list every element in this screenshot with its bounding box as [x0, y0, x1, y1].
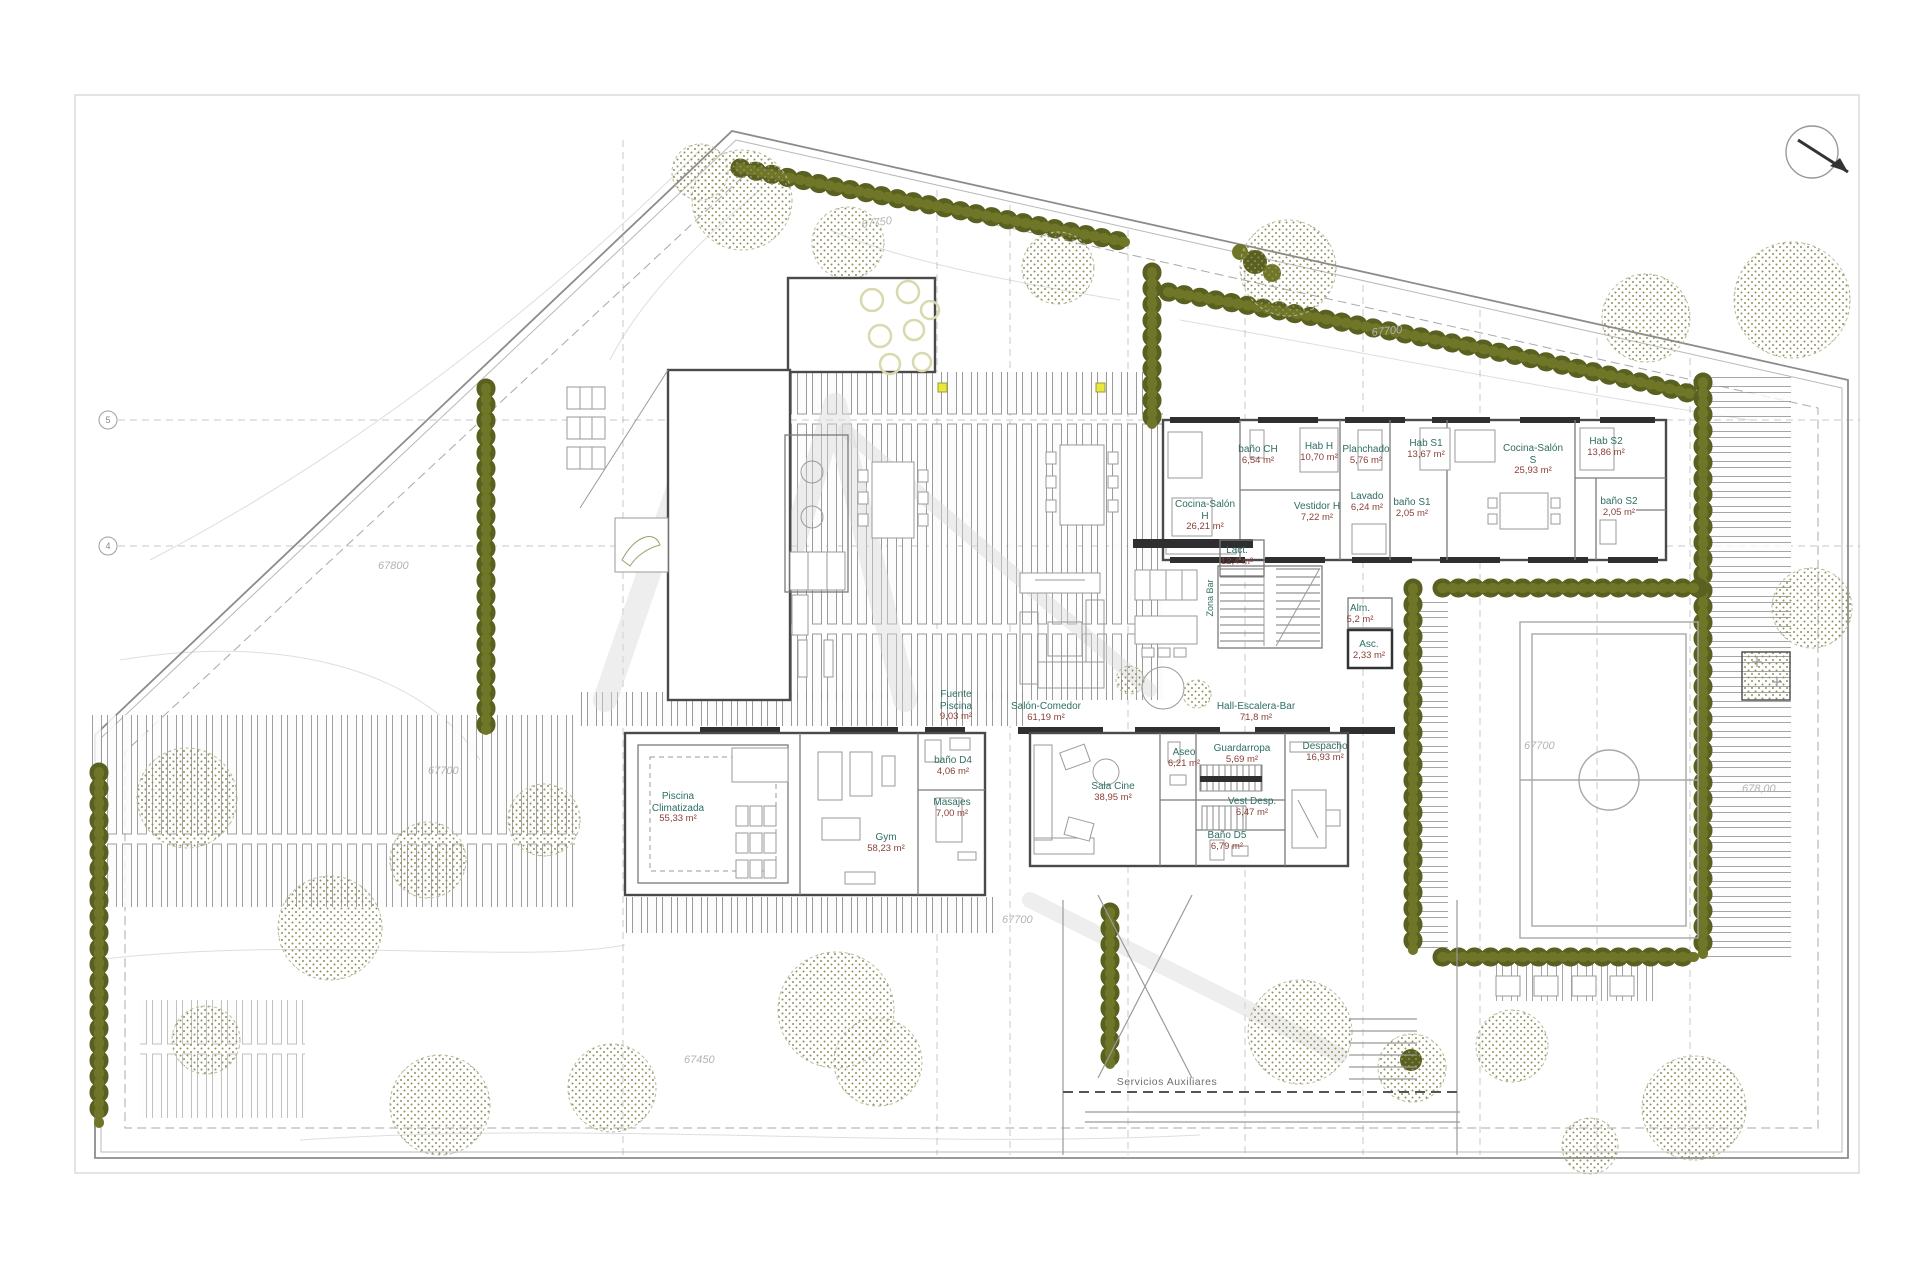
site-plan-drawing: 5 4 — [0, 0, 1920, 1280]
room-label-salon-comedor: Salón-Comedor61,19 m² — [986, 701, 1106, 723]
room-label-masajes: Masajes7,00 m² — [926, 797, 978, 819]
room-label-vestidor-h: Vestidor H7,22 m² — [1286, 501, 1348, 523]
room-label-bano-d4: baño D44,06 m² — [927, 755, 979, 777]
room-label-sala-cine: Sala Cine38,95 m² — [1082, 781, 1144, 803]
svg-text:67450: 67450 — [684, 1054, 715, 1066]
zona-bar-label: Zona Bar — [1205, 579, 1215, 616]
room-label-vest-desp: Vest Desp.6,47 m² — [1219, 796, 1285, 818]
staircase — [1218, 566, 1322, 648]
room-label-bano-s2: baño S22,05 m² — [1596, 496, 1642, 518]
room-label-ascensor: Asc.2,33 m² — [1349, 639, 1389, 661]
room-label-guardarropa: Guardarropa5,69 m² — [1200, 743, 1284, 765]
servicios-auxiliares-label: Servicios Auxiliares — [1117, 1076, 1217, 1088]
floor-plan-sheet: 5 4 — [0, 0, 1920, 1280]
svg-text:67800: 67800 — [378, 560, 409, 572]
skylight-grates — [567, 387, 605, 469]
svg-text:67700: 67700 — [1002, 914, 1033, 926]
svg-text:678,00: 678,00 — [1742, 783, 1777, 795]
room-label-almacen: Alm.5,2 m² — [1340, 603, 1380, 625]
room-label-fuente-piscina: Fuente Piscina9,03 m² — [929, 689, 983, 723]
room-label-hab-s2: Hab S213,86 m² — [1581, 436, 1631, 458]
svg-text:67700: 67700 — [428, 765, 459, 777]
room-label-cocina-salon-s: Cocina-Salón S25,93 m² — [1501, 443, 1565, 477]
pool-steps — [736, 806, 776, 878]
room-label-hab-s1: Hab S113,67 m² — [1401, 438, 1451, 460]
room-label-gym: Gym58,23 m² — [856, 832, 916, 854]
north-arrow-icon — [1786, 126, 1848, 178]
room-label-bano-s1: baño S12,05 m² — [1389, 497, 1435, 519]
marker-yellow — [1096, 383, 1105, 392]
room-label-piscina-climatizada: Piscina Climatizada55,33 m² — [644, 791, 712, 825]
room-label-planchado: Planchado5,76 m² — [1336, 444, 1396, 466]
room-label-despacho: Despacho16,93 m² — [1293, 741, 1357, 763]
room-label-bano-ch: baño CH6,54 m² — [1235, 444, 1281, 466]
marker-yellow — [938, 383, 947, 392]
room-label-aseo: Aseo6,21 m² — [1164, 747, 1204, 769]
room-label-hall-escalera-bar: Hall-Escalera-Bar71,8 m² — [1191, 701, 1321, 723]
room-label-bano-d5: Baño D56,79 m² — [1201, 830, 1253, 852]
grid-bubble-4: 4 — [105, 541, 110, 551]
room-label-cocina-salon-h: Cocina-Salón H26,21 m² — [1173, 499, 1237, 533]
svg-text:67700: 67700 — [1524, 740, 1555, 752]
room-label-lact: Lact.12,4 m² — [1212, 545, 1262, 567]
grid-bubble-5: 5 — [105, 415, 110, 425]
garden-shed — [1742, 652, 1790, 700]
room-label-lavado: Lavado6,24 m² — [1342, 491, 1392, 513]
